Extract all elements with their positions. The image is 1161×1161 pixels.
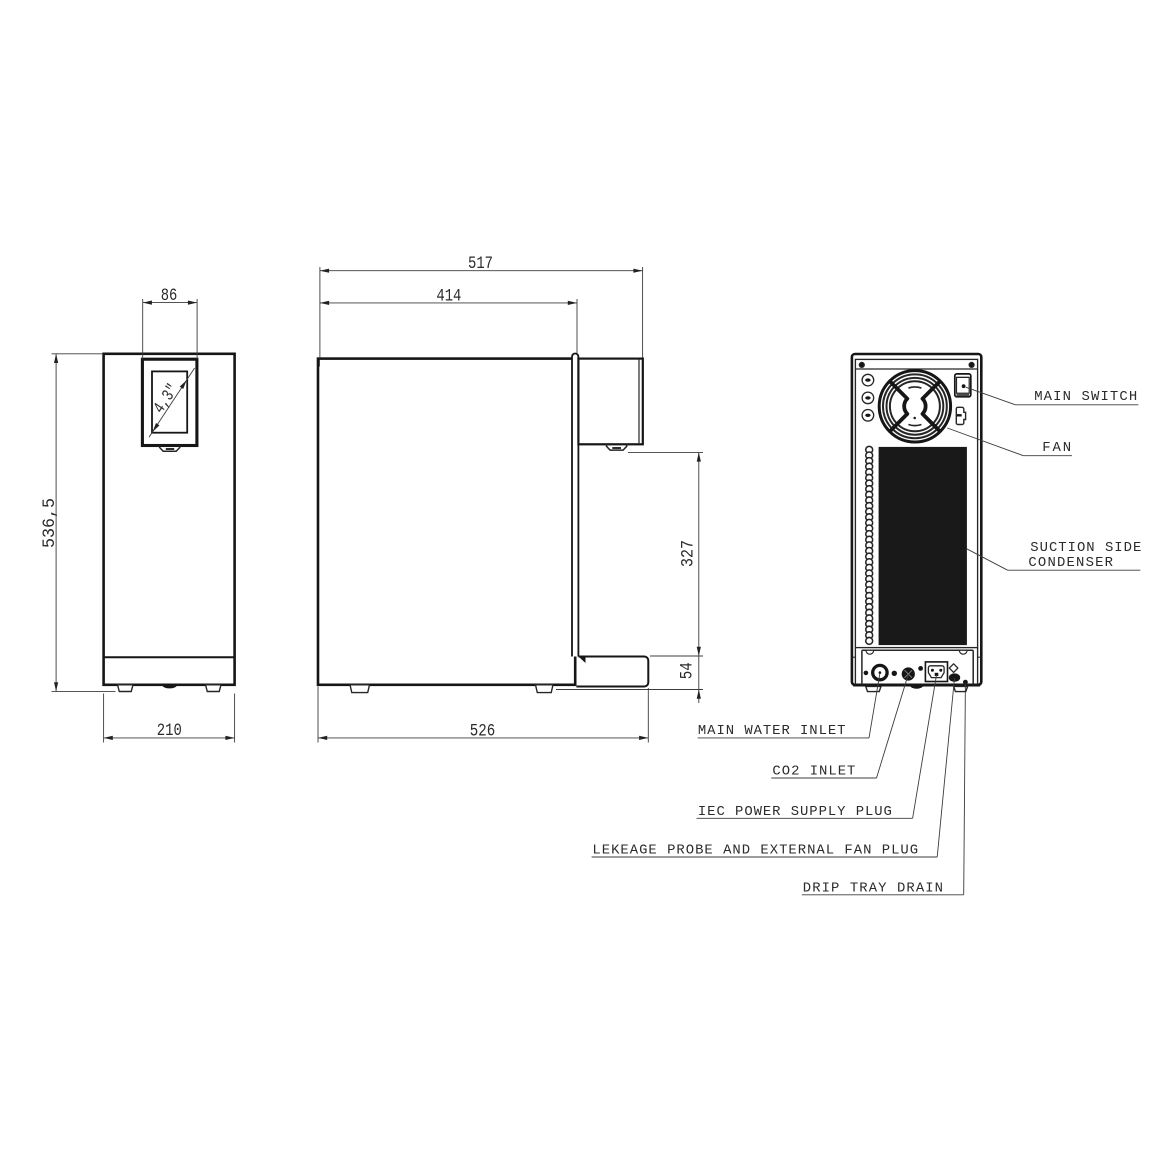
svg-text:327: 327: [679, 540, 699, 567]
svg-text:IEC POWER SUPPLY PLUG: IEC POWER SUPPLY PLUG: [698, 804, 892, 820]
svg-text:86: 86: [161, 286, 178, 306]
svg-text:FAN: FAN: [1042, 440, 1071, 456]
svg-text:210: 210: [157, 721, 182, 741]
svg-text:4,3": 4,3": [150, 381, 183, 417]
svg-text:SUCTION SIDE: SUCTION SIDE: [1030, 540, 1141, 556]
svg-text:517: 517: [468, 254, 493, 274]
svg-text:CONDENSER: CONDENSER: [1028, 555, 1113, 571]
svg-text:536,5: 536,5: [40, 498, 60, 548]
svg-text:MAIN SWITCH: MAIN SWITCH: [1034, 389, 1137, 405]
svg-text:DRIP TRAY DRAIN: DRIP TRAY DRAIN: [803, 880, 943, 896]
svg-text:CO2 INLET: CO2 INLET: [772, 763, 855, 779]
svg-text:54: 54: [677, 662, 697, 679]
svg-text:414: 414: [436, 286, 461, 306]
svg-text:MAIN WATER INLET: MAIN WATER INLET: [698, 723, 846, 739]
svg-text:526: 526: [470, 721, 495, 741]
svg-text:LEKEAGE PROBE AND EXTERNAL FAN: LEKEAGE PROBE AND EXTERNAL FAN PLUG: [592, 842, 918, 858]
